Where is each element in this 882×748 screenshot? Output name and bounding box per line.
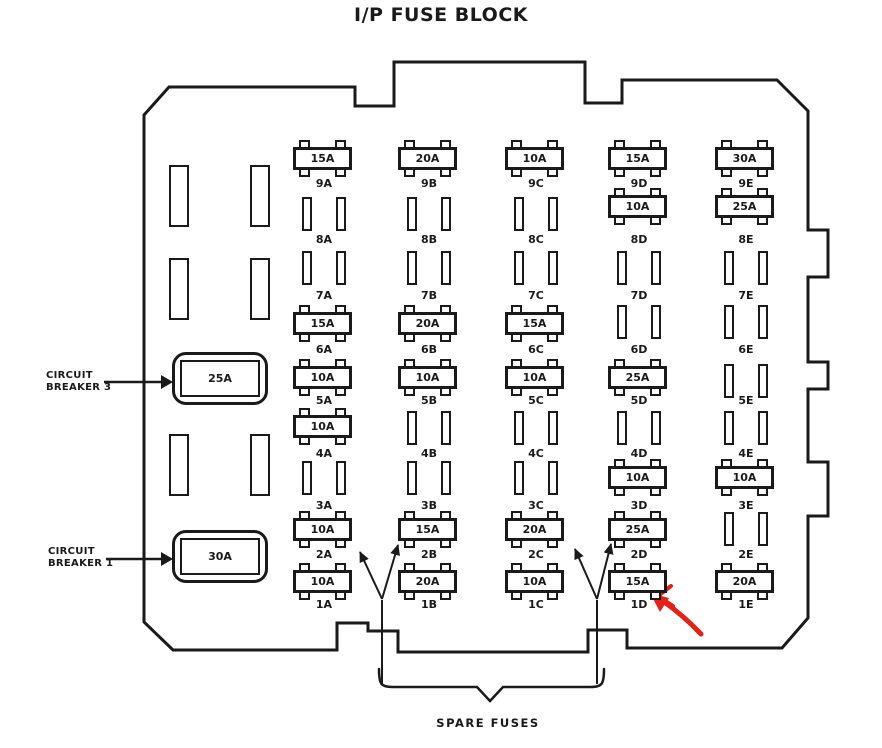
fuse-5C: 10A <box>505 359 567 396</box>
position-label-7A: 7A <box>294 289 354 302</box>
position-label-8A: 8A <box>294 233 354 246</box>
fuse-8E-amp: 25A <box>715 195 774 218</box>
fuse-4A-amp: 10A <box>293 415 352 438</box>
fuse-5D: 25A <box>608 359 670 396</box>
empty-slot-6E <box>724 305 768 339</box>
position-label-8C: 8C <box>506 233 566 246</box>
empty-slot-3C <box>514 461 558 495</box>
fuse-9B: 20A <box>398 140 460 177</box>
fuse-3E-amp: 10A <box>715 466 774 489</box>
empty-slot-4C-terminal <box>514 411 524 445</box>
position-label-6D: 6D <box>609 343 669 356</box>
empty-connector-slot <box>169 165 189 227</box>
empty-slot-4C-terminal <box>548 411 558 445</box>
empty-slot-8A-terminal <box>336 197 346 231</box>
empty-slot-6D-terminal <box>617 305 627 339</box>
empty-slot-3A-terminal <box>302 461 312 495</box>
empty-slot-7A-terminal <box>336 251 346 285</box>
fuse-2C: 20A <box>505 511 567 548</box>
position-label-1E: 1E <box>716 598 776 611</box>
fuse-9A-amp: 15A <box>293 147 352 170</box>
empty-slot-8C-terminal <box>548 197 558 231</box>
spare-fuses-bracket <box>379 669 604 701</box>
position-label-1C: 1C <box>506 598 566 611</box>
fuse-1A-amp: 10A <box>293 570 352 593</box>
empty-slot-7E-terminal <box>758 251 768 285</box>
position-label-2D: 2D <box>609 548 669 561</box>
empty-connector-slot <box>169 258 189 320</box>
fuse-2A: 10A <box>293 511 355 548</box>
position-label-7E: 7E <box>716 289 776 302</box>
position-label-5C: 5C <box>506 394 566 407</box>
circuit-breaker-1-label-line1: CIRCUIT <box>48 546 113 558</box>
spare-fuse-arrow-2C <box>575 549 597 599</box>
empty-slot-7C-terminal <box>548 251 558 285</box>
position-label-9C: 9C <box>506 177 566 190</box>
empty-slot-7B-terminal <box>441 251 451 285</box>
empty-slot-8A-terminal <box>302 197 312 231</box>
position-label-1B: 1B <box>399 598 459 611</box>
empty-slot-7D <box>617 251 661 285</box>
empty-slot-4E <box>724 411 768 445</box>
empty-slot-7D-terminal <box>651 251 661 285</box>
empty-slot-3B-terminal <box>441 461 451 495</box>
circuit-breaker-1-amp: 30A <box>180 538 260 575</box>
empty-slot-4E-terminal <box>724 411 734 445</box>
fuse-9A: 15A <box>293 140 355 177</box>
fuse-2C-amp: 20A <box>505 518 564 541</box>
fuse-1D: 15A <box>608 563 670 600</box>
spare-fuse-arrow-2A <box>360 552 382 599</box>
empty-slot-4D-terminal <box>651 411 661 445</box>
fuse-1B: 20A <box>398 563 460 600</box>
empty-slot-8C-terminal <box>514 197 524 231</box>
position-label-2C: 2C <box>506 548 566 561</box>
fuse-2B-amp: 15A <box>398 518 457 541</box>
fuse-1E-amp: 20A <box>715 570 774 593</box>
fuse-2A-amp: 10A <box>293 518 352 541</box>
fuse-9C: 10A <box>505 140 567 177</box>
empty-slot-8B-terminal <box>441 197 451 231</box>
position-label-8D: 8D <box>609 233 669 246</box>
fuse-9B-amp: 20A <box>398 147 457 170</box>
empty-slot-4E-terminal <box>758 411 768 445</box>
empty-slot-4C <box>514 411 558 445</box>
fuse-1B-amp: 20A <box>398 570 457 593</box>
empty-slot-7E <box>724 251 768 285</box>
empty-connector-slot <box>250 434 270 496</box>
fuse-4A: 10A <box>293 408 355 445</box>
position-label-7D: 7D <box>609 289 669 302</box>
empty-slot-8A <box>302 197 346 231</box>
empty-slot-6E-terminal <box>724 305 734 339</box>
empty-slot-4D-terminal <box>617 411 627 445</box>
fuse-3D-amp: 10A <box>608 466 667 489</box>
position-label-3E: 3E <box>716 499 776 512</box>
empty-slot-3B-terminal <box>407 461 417 495</box>
empty-slot-8C <box>514 197 558 231</box>
position-label-2B: 2B <box>399 548 459 561</box>
position-label-4B: 4B <box>399 447 459 460</box>
spare-fuses-label: SPARE FUSES <box>398 716 578 730</box>
fuse-9C-amp: 10A <box>505 147 564 170</box>
fuse-5D-amp: 25A <box>608 366 667 389</box>
spare-fuse-arrow-2B <box>382 545 398 599</box>
circuit-breaker-3-label-line2: BREAKER 3 <box>46 382 111 394</box>
fuse-1A: 10A <box>293 563 355 600</box>
empty-slot-3A <box>302 461 346 495</box>
position-label-1A: 1A <box>294 598 354 611</box>
empty-slot-8B-terminal <box>407 197 417 231</box>
position-label-5B: 5B <box>399 394 459 407</box>
circuit-breaker-1-label: CIRCUIT BREAKER 1 <box>48 546 113 570</box>
fuse-8E: 25A <box>715 188 777 225</box>
empty-connector-slot <box>250 258 270 320</box>
position-label-9A: 9A <box>294 177 354 190</box>
circuit-breaker-3-amp: 25A <box>180 360 260 397</box>
position-label-6A: 6A <box>294 343 354 356</box>
position-label-2E: 2E <box>716 548 776 561</box>
empty-connector-slot <box>169 434 189 496</box>
fuse-5A-amp: 10A <box>293 366 352 389</box>
position-label-6C: 6C <box>506 343 566 356</box>
position-label-9B: 9B <box>399 177 459 190</box>
position-label-5E: 5E <box>716 394 776 407</box>
empty-slot-7A <box>302 251 346 285</box>
empty-slot-4B-terminal <box>441 411 451 445</box>
position-label-8E: 8E <box>716 233 776 246</box>
fuse-1C: 10A <box>505 563 567 600</box>
fuse-8D-amp: 10A <box>608 195 667 218</box>
fuse-2D-amp: 25A <box>608 518 667 541</box>
position-label-4A: 4A <box>294 447 354 460</box>
fuse-6B-amp: 20A <box>398 312 457 335</box>
fuse-9D: 15A <box>608 140 670 177</box>
position-label-5A: 5A <box>294 394 354 407</box>
circuit-breaker-3: 25A <box>172 352 268 405</box>
empty-slot-7E-terminal <box>724 251 734 285</box>
fuse-9D-amp: 15A <box>608 147 667 170</box>
circuit-breaker-1-label-line2: BREAKER 1 <box>48 558 113 570</box>
position-label-2A: 2A <box>294 548 354 561</box>
fuse-6C-amp: 15A <box>505 312 564 335</box>
empty-slot-7A-terminal <box>302 251 312 285</box>
fuse-5B: 10A <box>398 359 460 396</box>
empty-slot-7C-terminal <box>514 251 524 285</box>
position-label-4C: 4C <box>506 447 566 460</box>
fuse-1E: 20A <box>715 563 777 600</box>
empty-slot-7D-terminal <box>617 251 627 285</box>
fuse-5A: 10A <box>293 359 355 396</box>
empty-slot-3C-terminal <box>548 461 558 495</box>
circuit-breaker-3-label-line1: CIRCUIT <box>46 370 111 382</box>
position-label-1D: 1D <box>609 598 669 611</box>
empty-slot-5E-terminal <box>724 364 734 398</box>
fuse-5C-amp: 10A <box>505 366 564 389</box>
fuse-9E: 30A <box>715 140 777 177</box>
fuse-1D-amp: 15A <box>608 570 667 593</box>
empty-slot-6D <box>617 305 661 339</box>
fuse-5B-amp: 10A <box>398 366 457 389</box>
circuit-breaker-3-label: CIRCUIT BREAKER 3 <box>46 370 111 394</box>
empty-slot-3C-terminal <box>514 461 524 495</box>
fuse-6C: 15A <box>505 305 567 342</box>
position-label-8B: 8B <box>399 233 459 246</box>
fuse-2B: 15A <box>398 511 460 548</box>
fuse-6A: 15A <box>293 305 355 342</box>
empty-slot-2E <box>724 512 768 546</box>
empty-slot-7C <box>514 251 558 285</box>
empty-slot-2E-terminal <box>758 512 768 546</box>
empty-slot-7B <box>407 251 451 285</box>
fuse-block-diagram: I/P FUSE BLOCK 2 <box>0 0 882 748</box>
empty-connector-slot <box>250 165 270 227</box>
fuse-3D: 10A <box>608 459 670 496</box>
position-label-6B: 6B <box>399 343 459 356</box>
fuse-9E-amp: 30A <box>715 147 774 170</box>
position-label-5D: 5D <box>609 394 669 407</box>
empty-slot-3A-terminal <box>336 461 346 495</box>
circuit-breaker-1: 30A <box>172 530 268 583</box>
empty-slot-7B-terminal <box>407 251 417 285</box>
fuse-8D: 10A <box>608 188 670 225</box>
empty-slot-6E-terminal <box>758 305 768 339</box>
empty-slot-4B <box>407 411 451 445</box>
position-label-6E: 6E <box>716 343 776 356</box>
fuse-6B: 20A <box>398 305 460 342</box>
fuse-2D: 25A <box>608 511 670 548</box>
fuse-6A-amp: 15A <box>293 312 352 335</box>
empty-slot-5E-terminal <box>758 364 768 398</box>
fuse-3E: 10A <box>715 459 777 496</box>
empty-slot-8B <box>407 197 451 231</box>
empty-slot-6D-terminal <box>651 305 661 339</box>
empty-slot-5E <box>724 364 768 398</box>
empty-slot-4B-terminal <box>407 411 417 445</box>
fuse-1C-amp: 10A <box>505 570 564 593</box>
empty-slot-3B <box>407 461 451 495</box>
position-label-7B: 7B <box>399 289 459 302</box>
empty-slot-4D <box>617 411 661 445</box>
empty-slot-2E-terminal <box>724 512 734 546</box>
position-label-7C: 7C <box>506 289 566 302</box>
